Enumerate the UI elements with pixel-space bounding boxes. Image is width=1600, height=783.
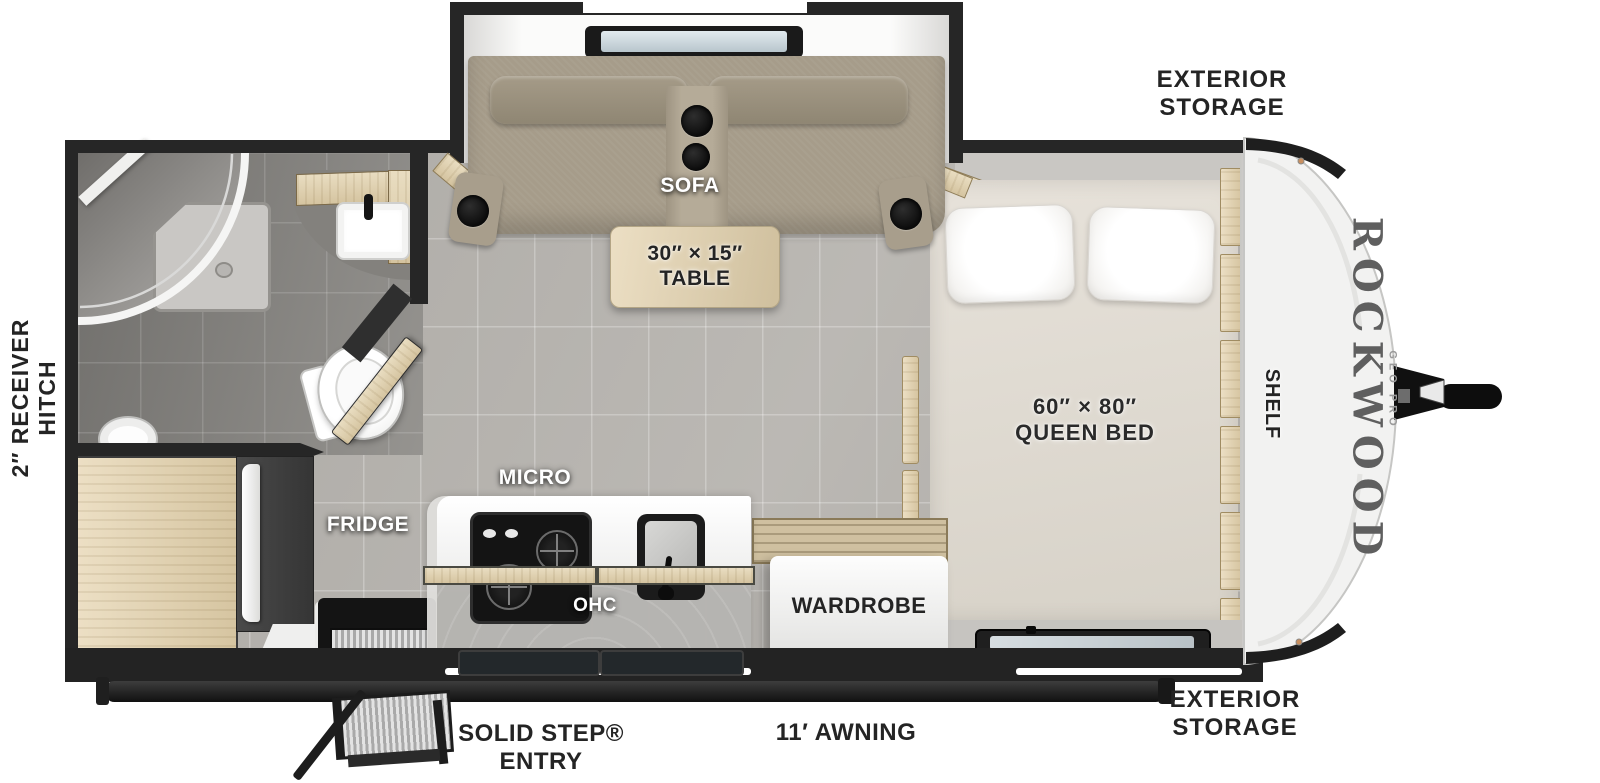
awning-bracket-left bbox=[96, 677, 109, 705]
ohc-rail-right bbox=[597, 566, 755, 585]
label-fridge: FRIDGE bbox=[327, 513, 409, 538]
floorplan-canvas: WARDROBE bbox=[0, 0, 1600, 783]
bathroom-sink bbox=[336, 202, 410, 260]
kitchen-window-right bbox=[600, 650, 744, 676]
label-shelf: SHELF bbox=[1259, 369, 1283, 440]
cupholder bbox=[682, 143, 710, 171]
label-sofa: SOFA bbox=[660, 174, 719, 199]
slideout-roof-window-strip bbox=[583, 1, 807, 13]
label-line: QUEEN BED bbox=[1015, 420, 1155, 446]
label-queen-bed: 60″ × 80″ QUEEN BED bbox=[1015, 394, 1155, 446]
label-exterior-storage-bottom: EXTERIOR STORAGE bbox=[1170, 686, 1301, 743]
shelf-block bbox=[1220, 340, 1242, 418]
shelf-block bbox=[1220, 426, 1242, 504]
kitchen-window-left bbox=[458, 650, 600, 676]
awning-rail-strip bbox=[1016, 668, 1242, 675]
label-line: SOLID STEP® bbox=[458, 720, 624, 748]
label-ohc: OHC bbox=[573, 595, 617, 617]
label-line: 60″ × 80″ bbox=[1015, 394, 1155, 420]
label-solid-step-entry: SOLID STEP® ENTRY bbox=[458, 720, 624, 777]
awning-roller bbox=[104, 681, 1166, 702]
sink-faucet-icon bbox=[364, 194, 373, 220]
cooktop-knob bbox=[505, 529, 518, 538]
label-line: ENTRY bbox=[458, 748, 624, 776]
label-receiver-hitch: 2″ RECEIVER HITCH bbox=[7, 248, 61, 548]
pillow-left bbox=[944, 204, 1075, 304]
dinette-table: 30″ × 15″ TABLE bbox=[610, 226, 780, 308]
label-line: STORAGE bbox=[1170, 714, 1301, 742]
cooktop-knob bbox=[483, 529, 496, 538]
table-label-size: 30″ × 15″ bbox=[647, 242, 742, 267]
label-line: HITCH bbox=[34, 248, 61, 548]
pillow-right bbox=[1086, 206, 1215, 304]
label-exterior-storage-top: EXTERIOR STORAGE bbox=[1157, 66, 1288, 123]
shelf-block bbox=[1220, 512, 1242, 590]
cupholder bbox=[457, 195, 489, 227]
bed-side-trim-upper bbox=[902, 356, 919, 464]
label-line: EXTERIOR bbox=[1170, 686, 1301, 714]
brand-geo-pro: GEO PRO bbox=[1386, 350, 1399, 429]
brand-rockwood: ROCKWOOD bbox=[1343, 217, 1390, 564]
cupholder bbox=[890, 198, 922, 230]
wall-top-right bbox=[955, 140, 1267, 153]
cap-rivet bbox=[1296, 639, 1302, 645]
shelf-block bbox=[1220, 168, 1242, 246]
sofa-back-cushion-right bbox=[708, 76, 908, 124]
label-awning: 11′ AWNING bbox=[776, 719, 917, 747]
label-micro: MICRO bbox=[499, 466, 572, 491]
wall-top-left bbox=[65, 140, 457, 153]
wardrobe-label: WARDROBE bbox=[792, 593, 927, 619]
bathroom-wall-right bbox=[410, 140, 428, 304]
hitch-coupler bbox=[1420, 380, 1444, 404]
wall-rear-left bbox=[65, 140, 78, 682]
sofa-back-cushion-left bbox=[490, 76, 688, 124]
label-line: STORAGE bbox=[1157, 94, 1288, 122]
window-latch bbox=[1026, 626, 1036, 634]
fridge-door bbox=[242, 464, 260, 622]
ohc-rail-left bbox=[423, 566, 597, 585]
wardrobe: WARDROBE bbox=[770, 556, 948, 655]
label-line: EXTERIOR bbox=[1157, 66, 1288, 94]
cupholder bbox=[681, 105, 713, 137]
table-label-name: TABLE bbox=[660, 267, 731, 292]
hitch-pin bbox=[1398, 389, 1410, 403]
rear-cabinet bbox=[78, 456, 238, 658]
hitch-tongue bbox=[1394, 366, 1444, 420]
shelf-block bbox=[1220, 254, 1242, 332]
slideout-window-glass bbox=[601, 31, 787, 52]
label-line: 2″ RECEIVER bbox=[7, 248, 34, 548]
hitch-jack-handle bbox=[1438, 384, 1502, 409]
kitchen-faucet-head bbox=[658, 586, 674, 600]
cap-rivet bbox=[1298, 158, 1304, 164]
bathroom bbox=[65, 140, 430, 462]
